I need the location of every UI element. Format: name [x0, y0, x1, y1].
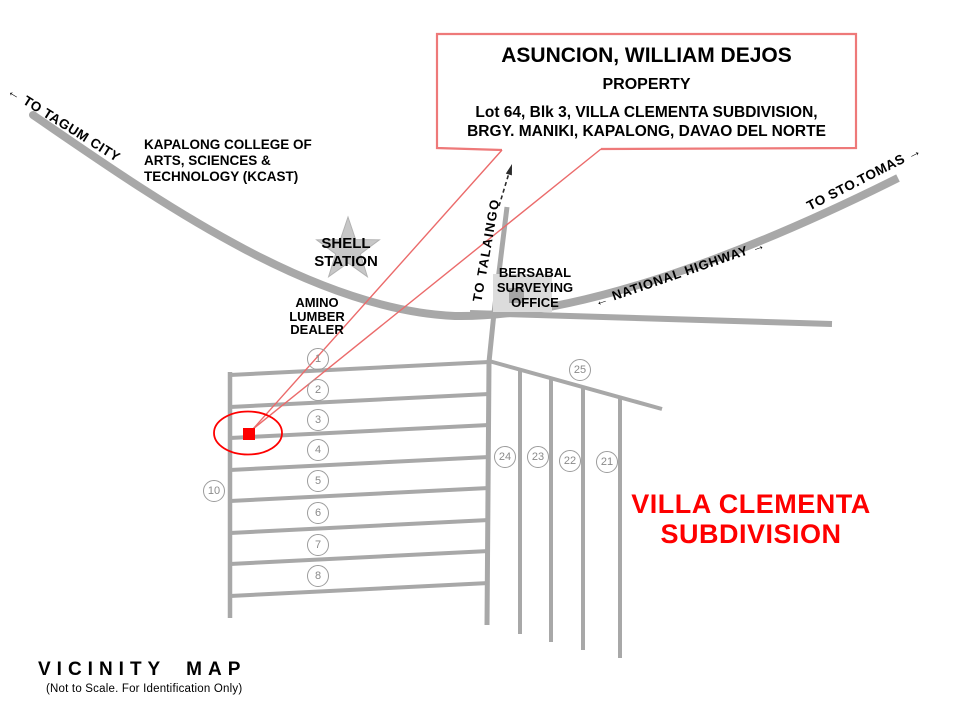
lot-marker-24: 24: [494, 446, 516, 468]
landmark-kcast-label: KAPALONG COLLEGE OF ARTS, SCIENCES & TEC…: [144, 137, 312, 185]
landmark-bersabal-office-label: BERSABAL SURVEYING OFFICE: [485, 265, 585, 310]
lot-marker-8: 8: [307, 565, 329, 587]
lot-marker-1: 1: [307, 348, 329, 370]
lot-marker-3: 3: [307, 409, 329, 431]
lot-marker-22: 22: [559, 450, 581, 472]
landmark-amino-lumber-label: AMINO LUMBER DEALER: [267, 296, 367, 337]
lot-marker-25: 25: [569, 359, 591, 381]
callout-leader-line-1: [253, 150, 502, 429]
vicinity-map-canvas: ASUNCION, WILLIAM DEJOS PROPERTY Lot 64,…: [0, 0, 960, 720]
map-title-note: (Not to Scale. For Identification Only): [46, 683, 242, 695]
callout-owner-name: ASUNCION, WILLIAM DEJOS: [436, 44, 857, 68]
property-lot-marker: [243, 428, 255, 440]
lot-marker-5: 5: [307, 470, 329, 492]
lot-marker-10: 10: [203, 480, 225, 502]
lot-marker-7: 7: [307, 534, 329, 556]
subdivision-row-roads: [230, 362, 489, 596]
callout-address-line2: BRGY. MANIKI, KAPALONG, DAVAO DEL NORTE: [436, 123, 857, 141]
east-branch-road: [470, 313, 832, 324]
lot-marker-4: 4: [307, 439, 329, 461]
lot-marker-6: 6: [307, 502, 329, 524]
subdivision-name-label: VILLA CLEMENTA SUBDIVISION: [591, 489, 911, 549]
lot-marker-2: 2: [307, 379, 329, 401]
callout-property-label: PROPERTY: [436, 76, 857, 94]
landmark-shell-station-label: SHELL STATION: [286, 235, 406, 271]
map-title: VICINITY MAP: [38, 659, 246, 681]
callout-address-line1: Lot 64, Blk 3, VILLA CLEMENTA SUBDIVISIO…: [436, 104, 857, 122]
lot-marker-21: 21: [596, 451, 618, 473]
talaingo-direction-arrow-head: [506, 164, 512, 175]
lot-marker-23: 23: [527, 446, 549, 468]
